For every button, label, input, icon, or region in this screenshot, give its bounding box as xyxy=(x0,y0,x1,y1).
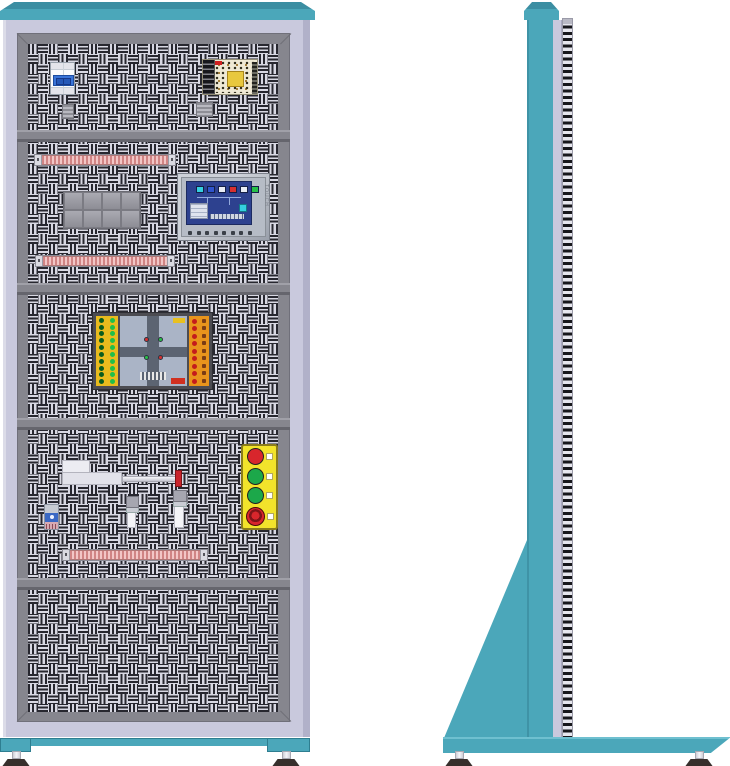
red-led-indicator xyxy=(192,341,197,346)
hmi-function-key[interactable] xyxy=(197,231,201,235)
contactor-module xyxy=(102,192,121,210)
red-led-indicator xyxy=(202,334,206,338)
traffic-signal-lamp xyxy=(158,337,163,342)
green-led-indicator xyxy=(110,331,115,336)
foot-stud xyxy=(455,751,464,759)
red-led-indicator xyxy=(202,341,206,345)
button-label-plate xyxy=(266,492,273,499)
drawing-canvas: TOUCH xyxy=(0,0,730,766)
sensor-head xyxy=(173,490,187,502)
foot-pad xyxy=(444,759,474,766)
hmi-screen-button xyxy=(251,186,259,193)
green-led-indicator xyxy=(99,372,104,377)
contactor-module xyxy=(83,192,102,210)
sensor-body xyxy=(127,513,137,528)
green-led-indicator xyxy=(110,366,115,371)
button-label-plate xyxy=(266,453,273,460)
leveling-foot xyxy=(271,751,301,766)
pushbutton[interactable] xyxy=(247,468,264,485)
rail-end-cap xyxy=(167,256,174,266)
psu-terminal-block xyxy=(203,60,215,94)
psu-heatsink xyxy=(252,62,257,94)
pushbutton-row xyxy=(247,448,273,465)
green-led-indicator xyxy=(110,359,115,364)
leveling-foot xyxy=(444,751,474,766)
breaker-toggle[interactable] xyxy=(53,75,74,86)
emergency-stop-row xyxy=(246,507,274,526)
body-left-highlight xyxy=(3,20,6,737)
trainer-right-led-column xyxy=(189,316,209,386)
road-horizontal xyxy=(120,347,187,357)
red-led-indicator xyxy=(202,364,206,368)
psu-red-label xyxy=(215,61,222,65)
hmi-function-key[interactable] xyxy=(214,231,218,235)
plinth-corner-block xyxy=(267,738,310,752)
rail-end-cap xyxy=(36,256,43,266)
foot-stud xyxy=(282,751,291,759)
foot-pad xyxy=(271,759,301,766)
green-led-indicator xyxy=(99,366,104,371)
green-led-indicator xyxy=(99,359,104,364)
sensor-head xyxy=(126,496,139,508)
green-led-indicator xyxy=(99,338,104,343)
red-led-indicator xyxy=(202,371,206,375)
trainer-intersection-graphic xyxy=(120,316,187,386)
green-led-indicator xyxy=(110,379,115,384)
red-led-indicator xyxy=(192,364,197,369)
red-led-indicator xyxy=(192,319,197,324)
panel-divider-bar xyxy=(17,578,290,590)
rail-end-cap xyxy=(200,550,207,560)
terminal-rail xyxy=(35,255,175,267)
contactor-module xyxy=(102,210,121,228)
red-led-indicator xyxy=(192,356,197,361)
hmi-screen-button xyxy=(196,186,204,193)
red-led-indicator xyxy=(202,356,206,360)
red-led-indicator xyxy=(202,379,206,383)
red-led-indicator xyxy=(202,326,206,330)
panel-divider-bar xyxy=(17,418,290,430)
rail-terminals xyxy=(42,155,168,165)
pushbutton[interactable] xyxy=(247,448,264,465)
red-led-indicator xyxy=(202,319,206,323)
foot-pad xyxy=(1,759,31,766)
side-view-perforated-edge xyxy=(562,18,573,740)
button-label-plate xyxy=(266,473,273,480)
green-led-indicator xyxy=(99,331,104,336)
green-led-indicator xyxy=(110,372,115,377)
contactor-module xyxy=(83,210,102,228)
green-led-indicator xyxy=(110,325,115,330)
hmi-screen-button xyxy=(240,186,248,193)
pushbutton-station xyxy=(241,444,278,530)
din-rail-clip xyxy=(62,104,74,119)
crosswalk-stripes xyxy=(140,372,166,380)
contactor-module xyxy=(121,210,140,228)
power-supply-board xyxy=(202,59,258,95)
green-led-indicator xyxy=(99,318,104,323)
foot-pad xyxy=(684,759,714,766)
hmi-function-key[interactable] xyxy=(222,231,226,235)
traffic-signal-lamp xyxy=(158,355,163,360)
din-rail-clip xyxy=(196,102,213,117)
contactor-module xyxy=(64,210,83,228)
breaker-toggle-lever[interactable] xyxy=(63,78,71,85)
red-led-indicator xyxy=(202,349,206,353)
pushbutton[interactable] xyxy=(247,487,264,504)
yellow-label xyxy=(173,318,185,323)
leveling-foot xyxy=(684,751,714,766)
side-view-frame-strip xyxy=(553,20,562,738)
rail-terminals xyxy=(70,550,200,560)
hmi-side-label: TOUCH xyxy=(263,184,269,207)
cylinder-rod-tip xyxy=(175,470,182,487)
hmi-function-key[interactable] xyxy=(248,231,252,235)
pushbutton-row xyxy=(247,487,273,504)
red-led-indicator xyxy=(192,334,197,339)
cylinder-rod xyxy=(122,476,176,482)
traffic-light-trainer-board xyxy=(92,312,213,390)
panel-divider-bar xyxy=(17,283,290,295)
green-led-indicator xyxy=(110,318,115,323)
rail-end-cap xyxy=(168,155,175,165)
green-led-indicator xyxy=(99,345,104,350)
leveling-foot xyxy=(1,751,31,766)
green-led-indicator xyxy=(99,325,104,330)
trainer-left-led-column xyxy=(96,316,118,386)
psu-transformer xyxy=(227,71,244,87)
green-led-indicator xyxy=(110,352,115,357)
hmi-mimic-table xyxy=(190,203,208,219)
green-led-indicator xyxy=(99,379,104,384)
hmi-screen-button xyxy=(229,186,237,193)
contactor-module xyxy=(64,192,83,210)
green-led-indicator xyxy=(110,345,115,350)
side-view-support-gusset xyxy=(444,540,527,738)
pushbutton-row xyxy=(247,468,273,485)
position-sensor xyxy=(173,490,185,528)
circuit-breaker[interactable] xyxy=(50,62,75,95)
contactor-module xyxy=(121,192,140,210)
hmi-mimic-line xyxy=(197,197,241,198)
side-view-column xyxy=(527,20,553,738)
foot-stud xyxy=(12,751,21,759)
green-led-indicator xyxy=(99,352,104,357)
red-led-indicator xyxy=(192,379,197,384)
rail-terminals xyxy=(43,256,167,266)
side-view-top-cap xyxy=(524,2,559,20)
hmi-screen-button xyxy=(207,186,215,193)
sensor-body xyxy=(174,507,184,528)
hmi-screen[interactable] xyxy=(186,181,252,225)
button-label-plate xyxy=(267,513,274,520)
cylinder-body xyxy=(62,472,122,485)
terminal-rail xyxy=(62,549,208,561)
hmi-function-key[interactable] xyxy=(205,231,209,235)
hmi-function-key[interactable] xyxy=(231,231,235,235)
hmi-screen-chips xyxy=(196,186,259,193)
emergency-stop-button[interactable] xyxy=(246,507,265,526)
hmi-mimic-line xyxy=(229,197,230,205)
contactor-group xyxy=(63,191,141,229)
terminal-rail xyxy=(34,154,176,166)
hmi-function-key[interactable] xyxy=(239,231,243,235)
hmi-mimic-tank xyxy=(239,204,247,212)
hmi-function-keys[interactable] xyxy=(186,228,254,237)
mini-sensor-board xyxy=(44,504,59,530)
red-led-indicator xyxy=(192,349,197,354)
panel-divider-bar xyxy=(17,130,290,142)
cabinet-top-cap xyxy=(0,2,315,20)
hmi-mimic-strip xyxy=(210,214,244,219)
hmi-screen-button xyxy=(218,186,226,193)
green-led-indicator xyxy=(110,338,115,343)
red-label xyxy=(171,378,185,384)
red-led-indicator xyxy=(192,371,197,376)
position-sensor xyxy=(126,496,137,528)
rail-end-cap xyxy=(63,550,70,560)
rail-end-cap xyxy=(35,155,42,165)
foot-stud xyxy=(695,751,704,759)
hmi-function-key[interactable] xyxy=(188,231,192,235)
plinth-corner-block xyxy=(0,738,31,752)
red-led-indicator xyxy=(192,326,197,331)
body-right-shading xyxy=(303,20,310,737)
plinth-bar xyxy=(2,738,310,746)
hmi-touch-panel[interactable]: TOUCH xyxy=(177,173,270,241)
